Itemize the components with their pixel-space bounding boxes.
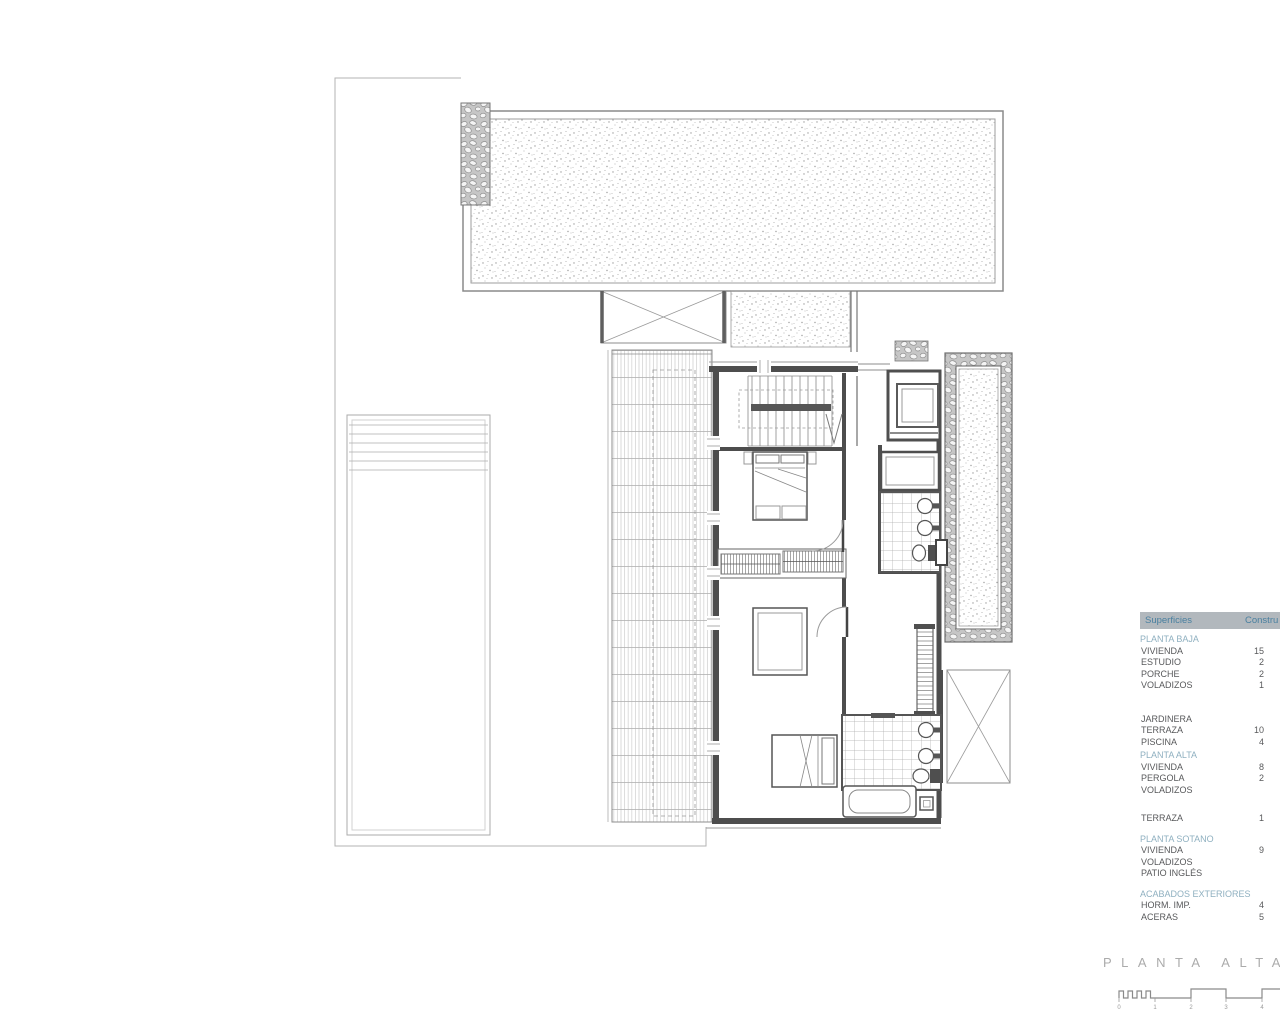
page-title: PLANTA ALTA [1103,955,1280,970]
laundry-room [888,371,940,440]
table-row: ACERAS5 [1140,912,1280,924]
bed-2 [772,735,837,787]
table-row: PATIO INGLÉS [1140,868,1280,880]
row-label: PATIO INGLÉS [1140,868,1202,880]
jardinera [945,353,1012,642]
table-gap [1140,796,1280,813]
scale-label-4: 4 [1260,1005,1264,1011]
areas-table-header: Superficies Constru [1140,612,1280,629]
table-section-planta-baja: PLANTA BAJA [1140,634,1280,646]
row-value: 8 [1140,762,1264,774]
table-section-planta-alta: PLANTA ALTA [1140,750,1280,762]
table-gap [1140,692,1280,714]
scale-label-0: 0 [1117,1005,1121,1011]
bathroom-1 [880,492,947,572]
gravel-patch-topright [895,341,928,361]
floor-plan-page: Superficies Constru PLANTA BAJAVIVIENDA1… [0,0,1280,1024]
skylight-xbox [601,291,726,343]
table-row: VIVIENDA8 [1140,762,1280,774]
row-value: 1 [1140,813,1264,825]
table-row: VOLADIZOS [1140,785,1280,797]
row-value: 9 [1140,845,1264,857]
table-header-superficies: Superficies [1145,612,1192,629]
bed-1 [744,452,816,520]
double-space-xbox [941,670,1010,783]
row-value: 2 [1140,657,1264,669]
table-gap [1140,825,1280,832]
table-row: TERRAZA10 [1140,725,1280,737]
table-row: PISCINA4 [1140,737,1280,749]
pergola [608,350,712,822]
scale-label-1: 1 [1153,1005,1157,1011]
table-row: ESTUDIO2 [1140,657,1280,669]
row-value: 1 [1140,680,1264,692]
scale-label-2: 2 [1189,1005,1193,1011]
closet [881,452,939,490]
roof-terrace [463,111,1003,291]
table-row: JARDINERA [1140,714,1280,726]
staircase [739,376,842,446]
table-row: TERRAZA1 [1140,813,1280,825]
table-gap [1140,880,1280,887]
row-label: VOLADIZOS [1140,785,1193,797]
row-value: 4 [1140,737,1264,749]
table-row: VOLADIZOS1 [1140,680,1280,692]
wall-connector [851,291,857,352]
wardrobe [718,549,846,578]
roof-ladder [914,624,935,715]
areas-table-rows: PLANTA BAJAVIVIENDA15ESTUDIO2PORCHE2VOLA… [1140,634,1280,923]
row-label: JARDINERA [1140,714,1192,726]
table-row: PERGOLA2 [1140,773,1280,785]
row-label: VOLADIZOS [1140,857,1193,869]
terrace-strip [731,291,850,347]
row-value: 15 [1140,646,1264,658]
table-row: HORM. IMP.4 [1140,900,1280,912]
table-section-planta-sotano: PLANTA SOTANO [1140,834,1280,846]
toilet-icon [913,769,940,783]
table-row: VOLADIZOS [1140,857,1280,869]
bedroom2-closet [753,608,807,675]
gravel-strip-topleft [461,103,490,205]
scale-label-3: 3 [1224,1005,1228,1011]
table-row: VIVIENDA15 [1140,646,1280,658]
bathtub-icon [843,786,916,817]
row-value: 10 [1140,725,1264,737]
table-header-construida: Constru [1245,612,1278,629]
pool [347,415,490,835]
scale-bar: 0 1 2 3 4 [1100,980,1280,1020]
table-row: PORCHE2 [1140,669,1280,681]
bathroom-2 [842,713,941,817]
row-value: 4 [1140,900,1264,912]
row-value: 2 [1140,773,1264,785]
row-value: 5 [1140,912,1264,924]
floor-plan-drawing [0,0,1280,1024]
row-value: 2 [1140,669,1264,681]
table-section-acabados-exteriores: ACABADOS EXTERIORES [1140,889,1280,901]
table-row: VIVIENDA9 [1140,845,1280,857]
areas-table: Superficies Constru PLANTA BAJAVIVIENDA1… [1140,612,1280,923]
